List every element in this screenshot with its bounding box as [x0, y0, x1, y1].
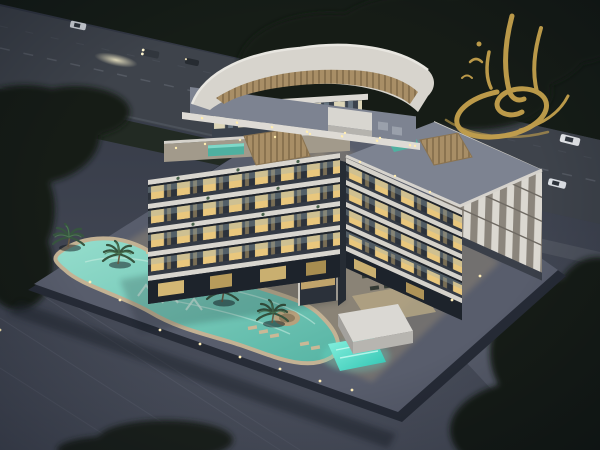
vignette [0, 0, 600, 450]
scene-canvas [0, 0, 600, 450]
render-image [0, 0, 600, 450]
logo-dot [477, 42, 482, 47]
